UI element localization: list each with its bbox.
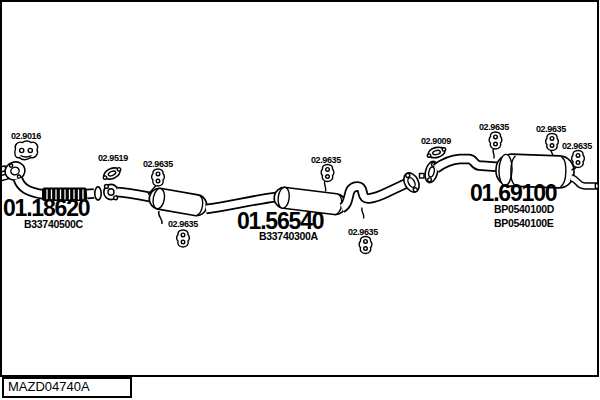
- joint-flange: [104, 184, 118, 199]
- callout-label[interactable]: 02.9635: [536, 125, 566, 135]
- callout-label[interactable]: 02.9635: [168, 220, 198, 230]
- rubber-mount-icon: [152, 169, 165, 186]
- callout-label[interactable]: 02.9635: [143, 160, 173, 170]
- callout-label[interactable]: 02.9635: [479, 123, 509, 133]
- bolt-icon: [420, 174, 425, 179]
- oem-ref: BP0540100E: [494, 218, 553, 230]
- oem-ref: B33740300A: [259, 231, 318, 243]
- front-pipe: [18, 179, 44, 195]
- callout-label[interactable]: 02.9016: [11, 132, 41, 142]
- intermediate-pipe-front: [117, 192, 150, 197]
- drawing-code-box: MAZD04740A: [2, 377, 132, 398]
- rubber-mount-icon: [489, 132, 502, 149]
- front-resonator: [148, 187, 209, 218]
- s-bend-pipe: [342, 184, 406, 209]
- hanger-bracket: [493, 149, 494, 159]
- callout-label[interactable]: 02.9635: [562, 142, 592, 152]
- oem-ref: BP0540100D: [494, 204, 554, 216]
- callout-label[interactable]: 02.9009: [421, 137, 451, 147]
- exhaust-parts-diagram-page: { "drawing": { "code": "MAZD04740A" }, "…: [0, 0, 600, 400]
- oem-ref: B33740500C: [24, 219, 83, 231]
- rubber-mount-icon: [572, 151, 585, 168]
- drawing-frame: 02.9016 02.9519 02.9635 02.9635 02.9635 …: [0, 0, 599, 377]
- callout-label[interactable]: 02.9519: [98, 154, 128, 164]
- callout-label[interactable]: 02.9635: [348, 228, 378, 238]
- hanger-bracket: [324, 181, 325, 192]
- rear-pipe: [436, 159, 499, 169]
- rubber-mount-icon: [177, 230, 190, 247]
- part-number[interactable]: 01.18620: [3, 197, 89, 220]
- flange-gasket-icon: [101, 165, 123, 182]
- part-number[interactable]: 01.69100: [470, 182, 556, 205]
- flange-gasket-icon: [426, 145, 447, 159]
- rubber-mount-icon: [359, 237, 372, 254]
- hanger-bracket: [362, 208, 364, 219]
- rubber-mount-icon: [321, 165, 334, 182]
- tailpipe: [571, 178, 598, 189]
- hanger-bracket: [159, 211, 163, 224]
- rubber-mount-icon: [546, 134, 559, 151]
- drawing-code: MAZD04740A: [8, 379, 90, 394]
- rubber-mount-icon: [15, 141, 38, 160]
- callout-label[interactable]: 02.9635: [311, 156, 341, 166]
